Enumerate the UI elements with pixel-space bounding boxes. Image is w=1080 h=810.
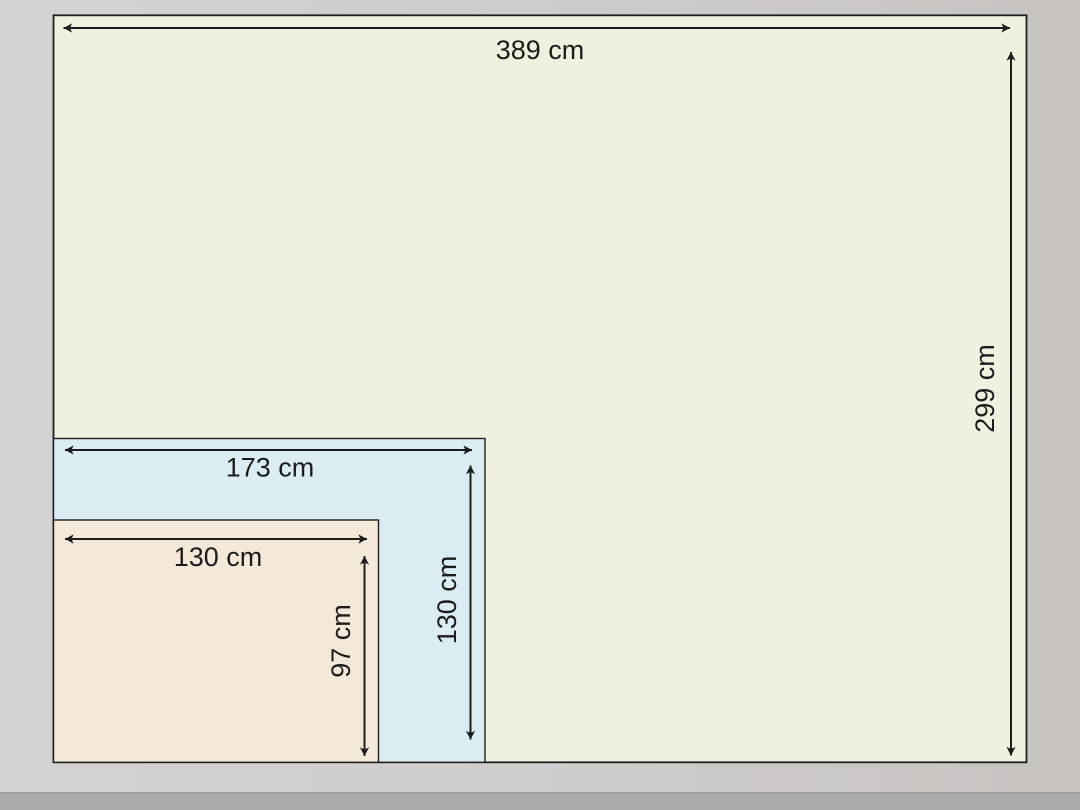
svg-text:389 cm: 389 cm [496,35,585,65]
svg-text:130 cm: 130 cm [432,556,462,645]
svg-text:130 cm: 130 cm [174,542,263,572]
svg-text:97 cm: 97 cm [326,604,356,678]
svg-text:173 cm: 173 cm [226,452,315,482]
svg-text:299 cm: 299 cm [970,344,1000,433]
